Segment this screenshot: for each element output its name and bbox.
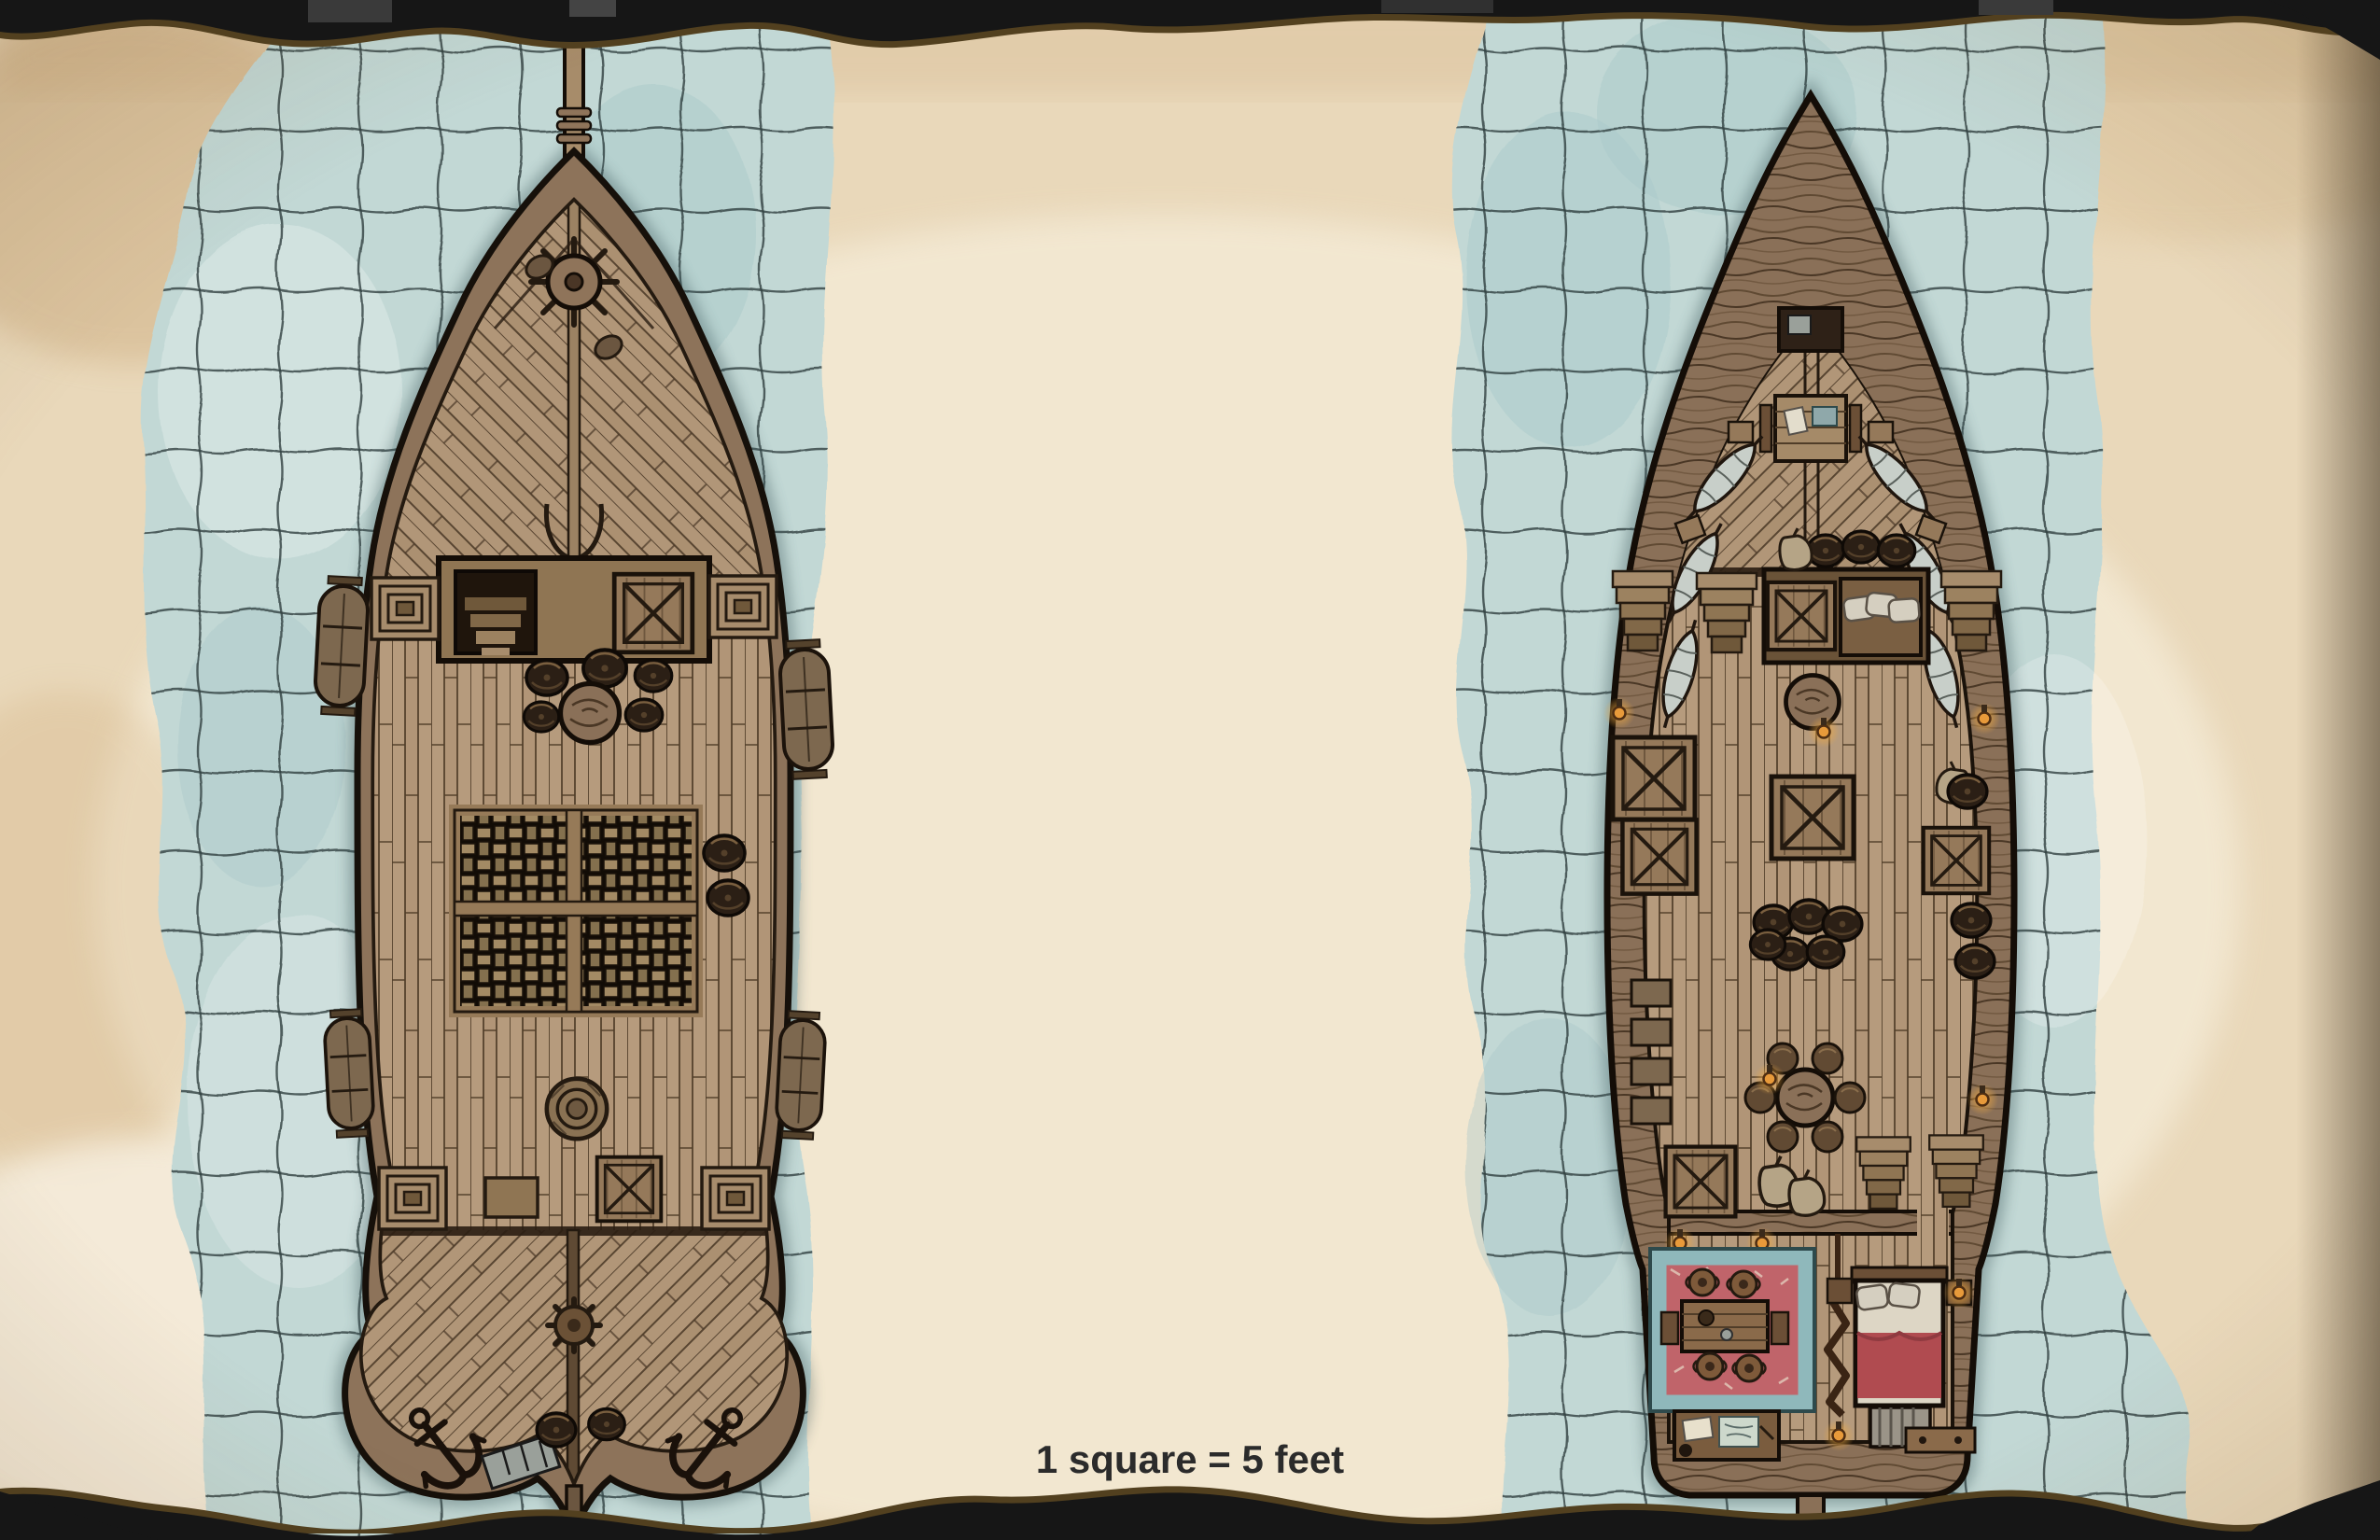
scale-label: 1 square = 5 feet [1036,1437,1344,1481]
map-canvas: 1 square = 5 feet [0,0,2380,1540]
vignette [0,0,2380,1540]
right-edge-shadow [2296,0,2380,1540]
ship-battle-map: 1 square = 5 feet [0,0,2380,1540]
